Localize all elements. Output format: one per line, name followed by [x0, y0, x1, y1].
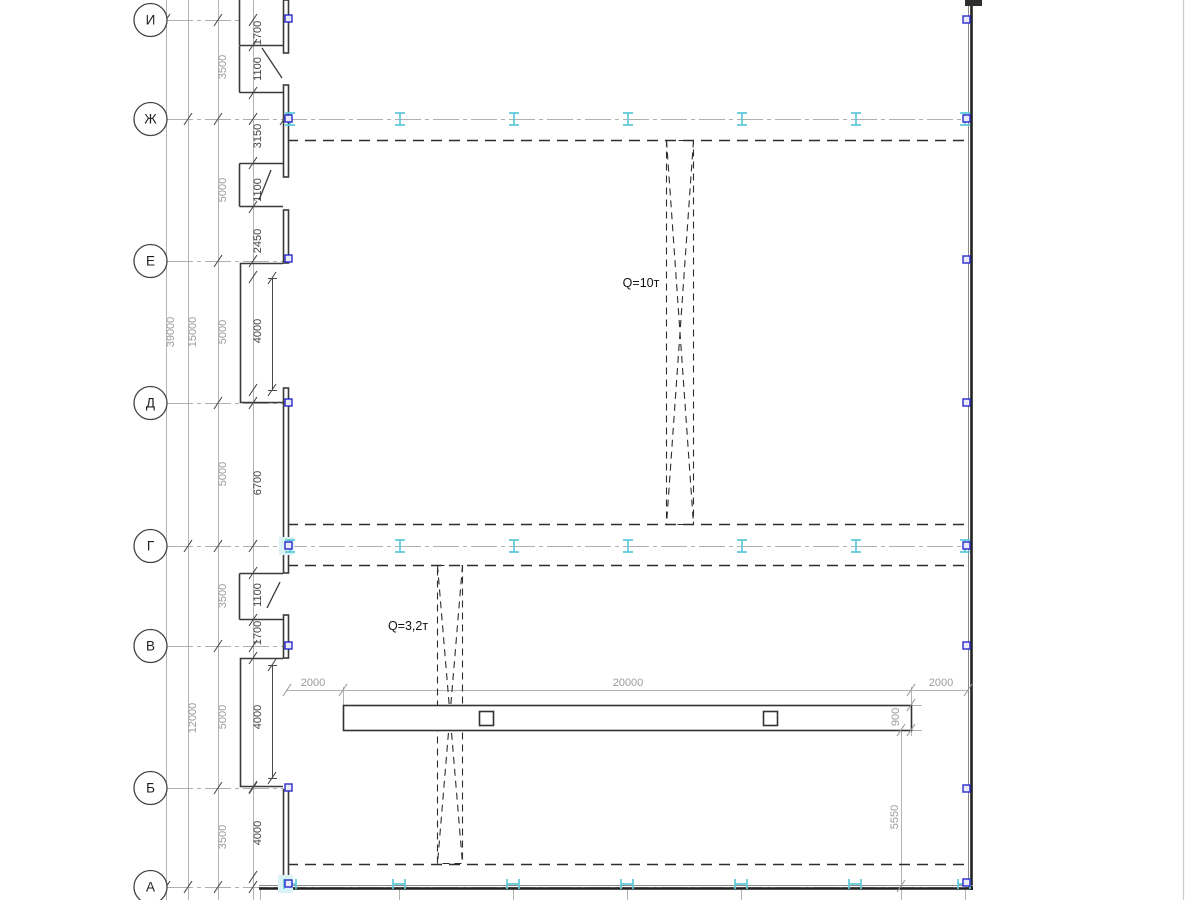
dim-spacing: 5000: [217, 320, 229, 344]
axis-label-e: Е: [146, 254, 155, 269]
tick-marks-dark: [162, 14, 288, 893]
dim-chain: 6700: [252, 471, 264, 495]
axis-label-g: Г: [147, 539, 155, 554]
dim-spacing: 3500: [217, 825, 229, 849]
dim-spacing: 3500: [217, 55, 229, 79]
crane-bridge-10t: [667, 141, 694, 525]
dim-chain: 1700: [252, 621, 264, 645]
trolley-square: [480, 712, 494, 726]
crane-runway-lines: [287, 141, 968, 865]
gate-leaf: [262, 48, 282, 78]
dim-chain: 1700: [252, 21, 264, 45]
dim-beam-run: 2000: [929, 677, 953, 689]
wall-panel: [284, 85, 289, 177]
dim-spacing: 5000: [217, 705, 229, 729]
right-wall: [965, 0, 982, 890]
dim-lower-group: 12000: [187, 703, 199, 734]
left-wall: [240, 0, 289, 884]
dim-beam-offset: 5550: [889, 805, 901, 829]
drawing-sheet: И Ж Е Д Г В Б А 39000 15000 12000 3500 5…: [0, 0, 1200, 900]
dim-beam-width: 900: [890, 708, 902, 726]
crane-labels: Q=10т Q=3,2т: [388, 276, 660, 633]
dim-beam-run: 20000: [613, 677, 644, 689]
dim-spacing: 5000: [217, 178, 229, 202]
wall-panel: [284, 790, 289, 884]
crane-label-3-2t: Q=3,2т: [388, 619, 428, 633]
dim-beam-run: 2000: [301, 677, 325, 689]
trolley-square: [764, 712, 778, 726]
dim-chain: 1100: [252, 178, 264, 202]
crane-label-10t: Q=10т: [623, 276, 660, 290]
gate-leaf: [267, 582, 280, 608]
crane-rail-symbols: [284, 113, 970, 889]
dim-chain: 4000: [252, 705, 264, 729]
dim-chain: 4000: [252, 319, 264, 343]
dim-chain: 1100: [252, 583, 264, 607]
axis-bubbles: И Ж Е Д Г В Б А: [134, 4, 167, 900]
axis-label-v: В: [146, 639, 155, 654]
axis-label-zh: Ж: [144, 112, 157, 127]
wall-top-cut: [965, 0, 982, 6]
monorail-beam: [344, 706, 912, 731]
dim-chain: 2450: [252, 229, 264, 253]
wall-panel: [284, 0, 289, 53]
dim-chain: 4000: [252, 821, 264, 845]
plan-drawing: И Ж Е Д Г В Б А 39000 15000 12000 3500 5…: [0, 0, 1200, 900]
axis-label-b: Б: [146, 781, 155, 796]
axis-label-d: Д: [146, 396, 155, 411]
axis-label-i: И: [146, 13, 156, 28]
bay-inner-dims: [268, 278, 277, 779]
dim-spacing: 3500: [217, 584, 229, 608]
axis-label-a: А: [146, 880, 155, 895]
dim-upper-group: 15000: [187, 317, 199, 348]
dim-spacing: 5000: [217, 462, 229, 486]
wall-panel: [284, 615, 289, 658]
column-markers: [285, 15, 970, 887]
dim-chain: 1100: [252, 57, 264, 81]
dim-chain: 3150: [252, 124, 264, 148]
dim-total: 39000: [165, 317, 177, 348]
